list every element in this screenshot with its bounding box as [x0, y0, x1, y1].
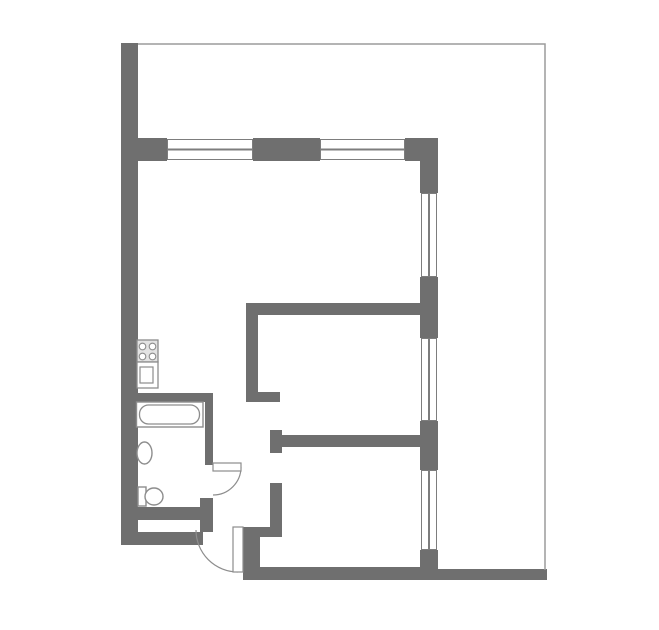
entry-door-leaf — [233, 527, 243, 572]
window-right-3 — [421, 470, 437, 550]
wall-bathroom-right-upper — [205, 393, 213, 465]
wall-bedroom2-top-cap — [270, 430, 282, 453]
wall-right-seg-1 — [420, 138, 438, 193]
wall-bottom-strip-right — [437, 569, 547, 580]
wall-bathroom-top — [138, 393, 213, 402]
kitchen-sink-basin — [140, 367, 153, 383]
wall-hall-stub — [246, 392, 280, 402]
toilet-tank — [138, 487, 146, 506]
wall-right-seg-2 — [420, 277, 438, 338]
bathroom-door-arc — [213, 467, 241, 495]
stove-burner-4 — [149, 353, 156, 360]
stove-burner-1 — [139, 343, 146, 350]
wall-top-pier-left — [138, 138, 167, 161]
wall-bedroom2-top — [270, 435, 420, 447]
stove-burner-2 — [149, 343, 156, 350]
bathtub-basin — [140, 405, 200, 424]
window-right-1 — [421, 193, 437, 277]
bathtub-rim — [137, 402, 204, 427]
stove-body — [137, 340, 158, 362]
window-top-2 — [320, 139, 405, 160]
wall-left — [121, 43, 138, 545]
floor-plan-overlay — [0, 0, 659, 630]
window-right-2 — [421, 338, 437, 421]
wall-hall-vertical — [246, 303, 258, 402]
floor-plan — [0, 0, 659, 630]
wall-living-divider — [246, 303, 420, 315]
stove-burner-3 — [139, 353, 146, 360]
toilet-bowl — [145, 488, 163, 505]
bathroom-sink — [137, 442, 152, 464]
bathroom-door-leaf — [213, 463, 241, 471]
wall-bathroom-bottom-inner — [138, 507, 202, 520]
wall-bottom-left — [121, 532, 203, 545]
wall-right-seg-3 — [420, 421, 438, 470]
kitchen-sink-body — [137, 362, 158, 388]
window-top-1 — [167, 139, 253, 160]
wall-bottom-room2 — [243, 567, 437, 580]
wall-top-pier-middle — [253, 138, 320, 161]
